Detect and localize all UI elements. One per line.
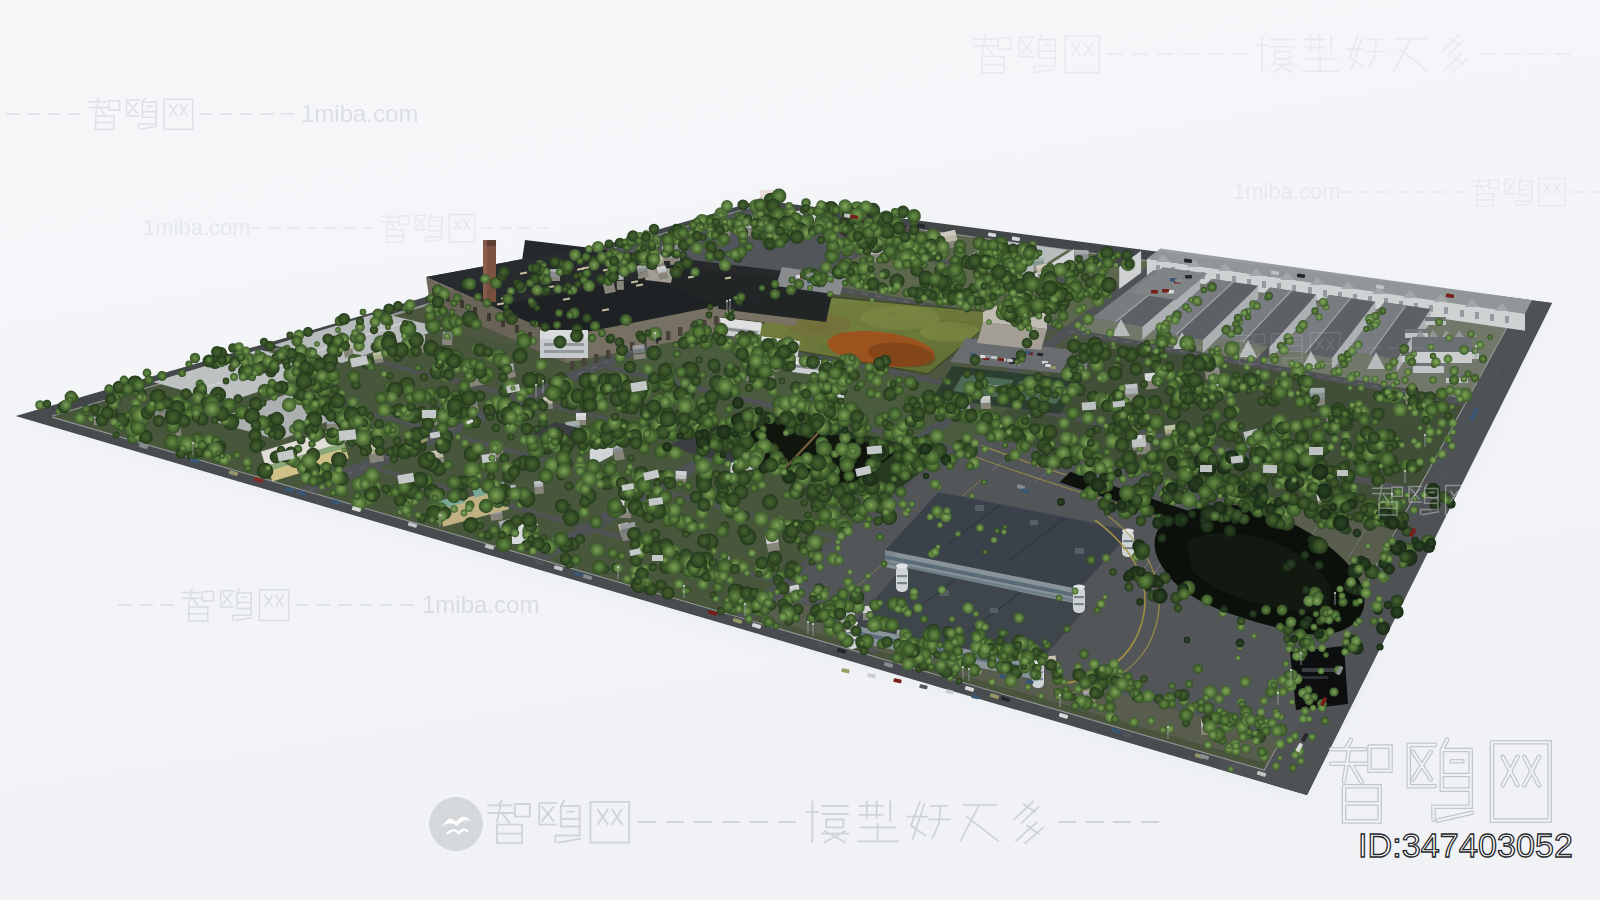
svg-text:1miba.com: 1miba.com — [143, 215, 251, 240]
svg-text:1miba.com: 1miba.com — [301, 100, 418, 127]
svg-text:1miba.com: 1miba.com — [422, 591, 539, 618]
svg-text:ID:347403052: ID:347403052 — [1358, 826, 1574, 864]
svg-text:1miba.com: 1miba.com — [1233, 179, 1341, 204]
